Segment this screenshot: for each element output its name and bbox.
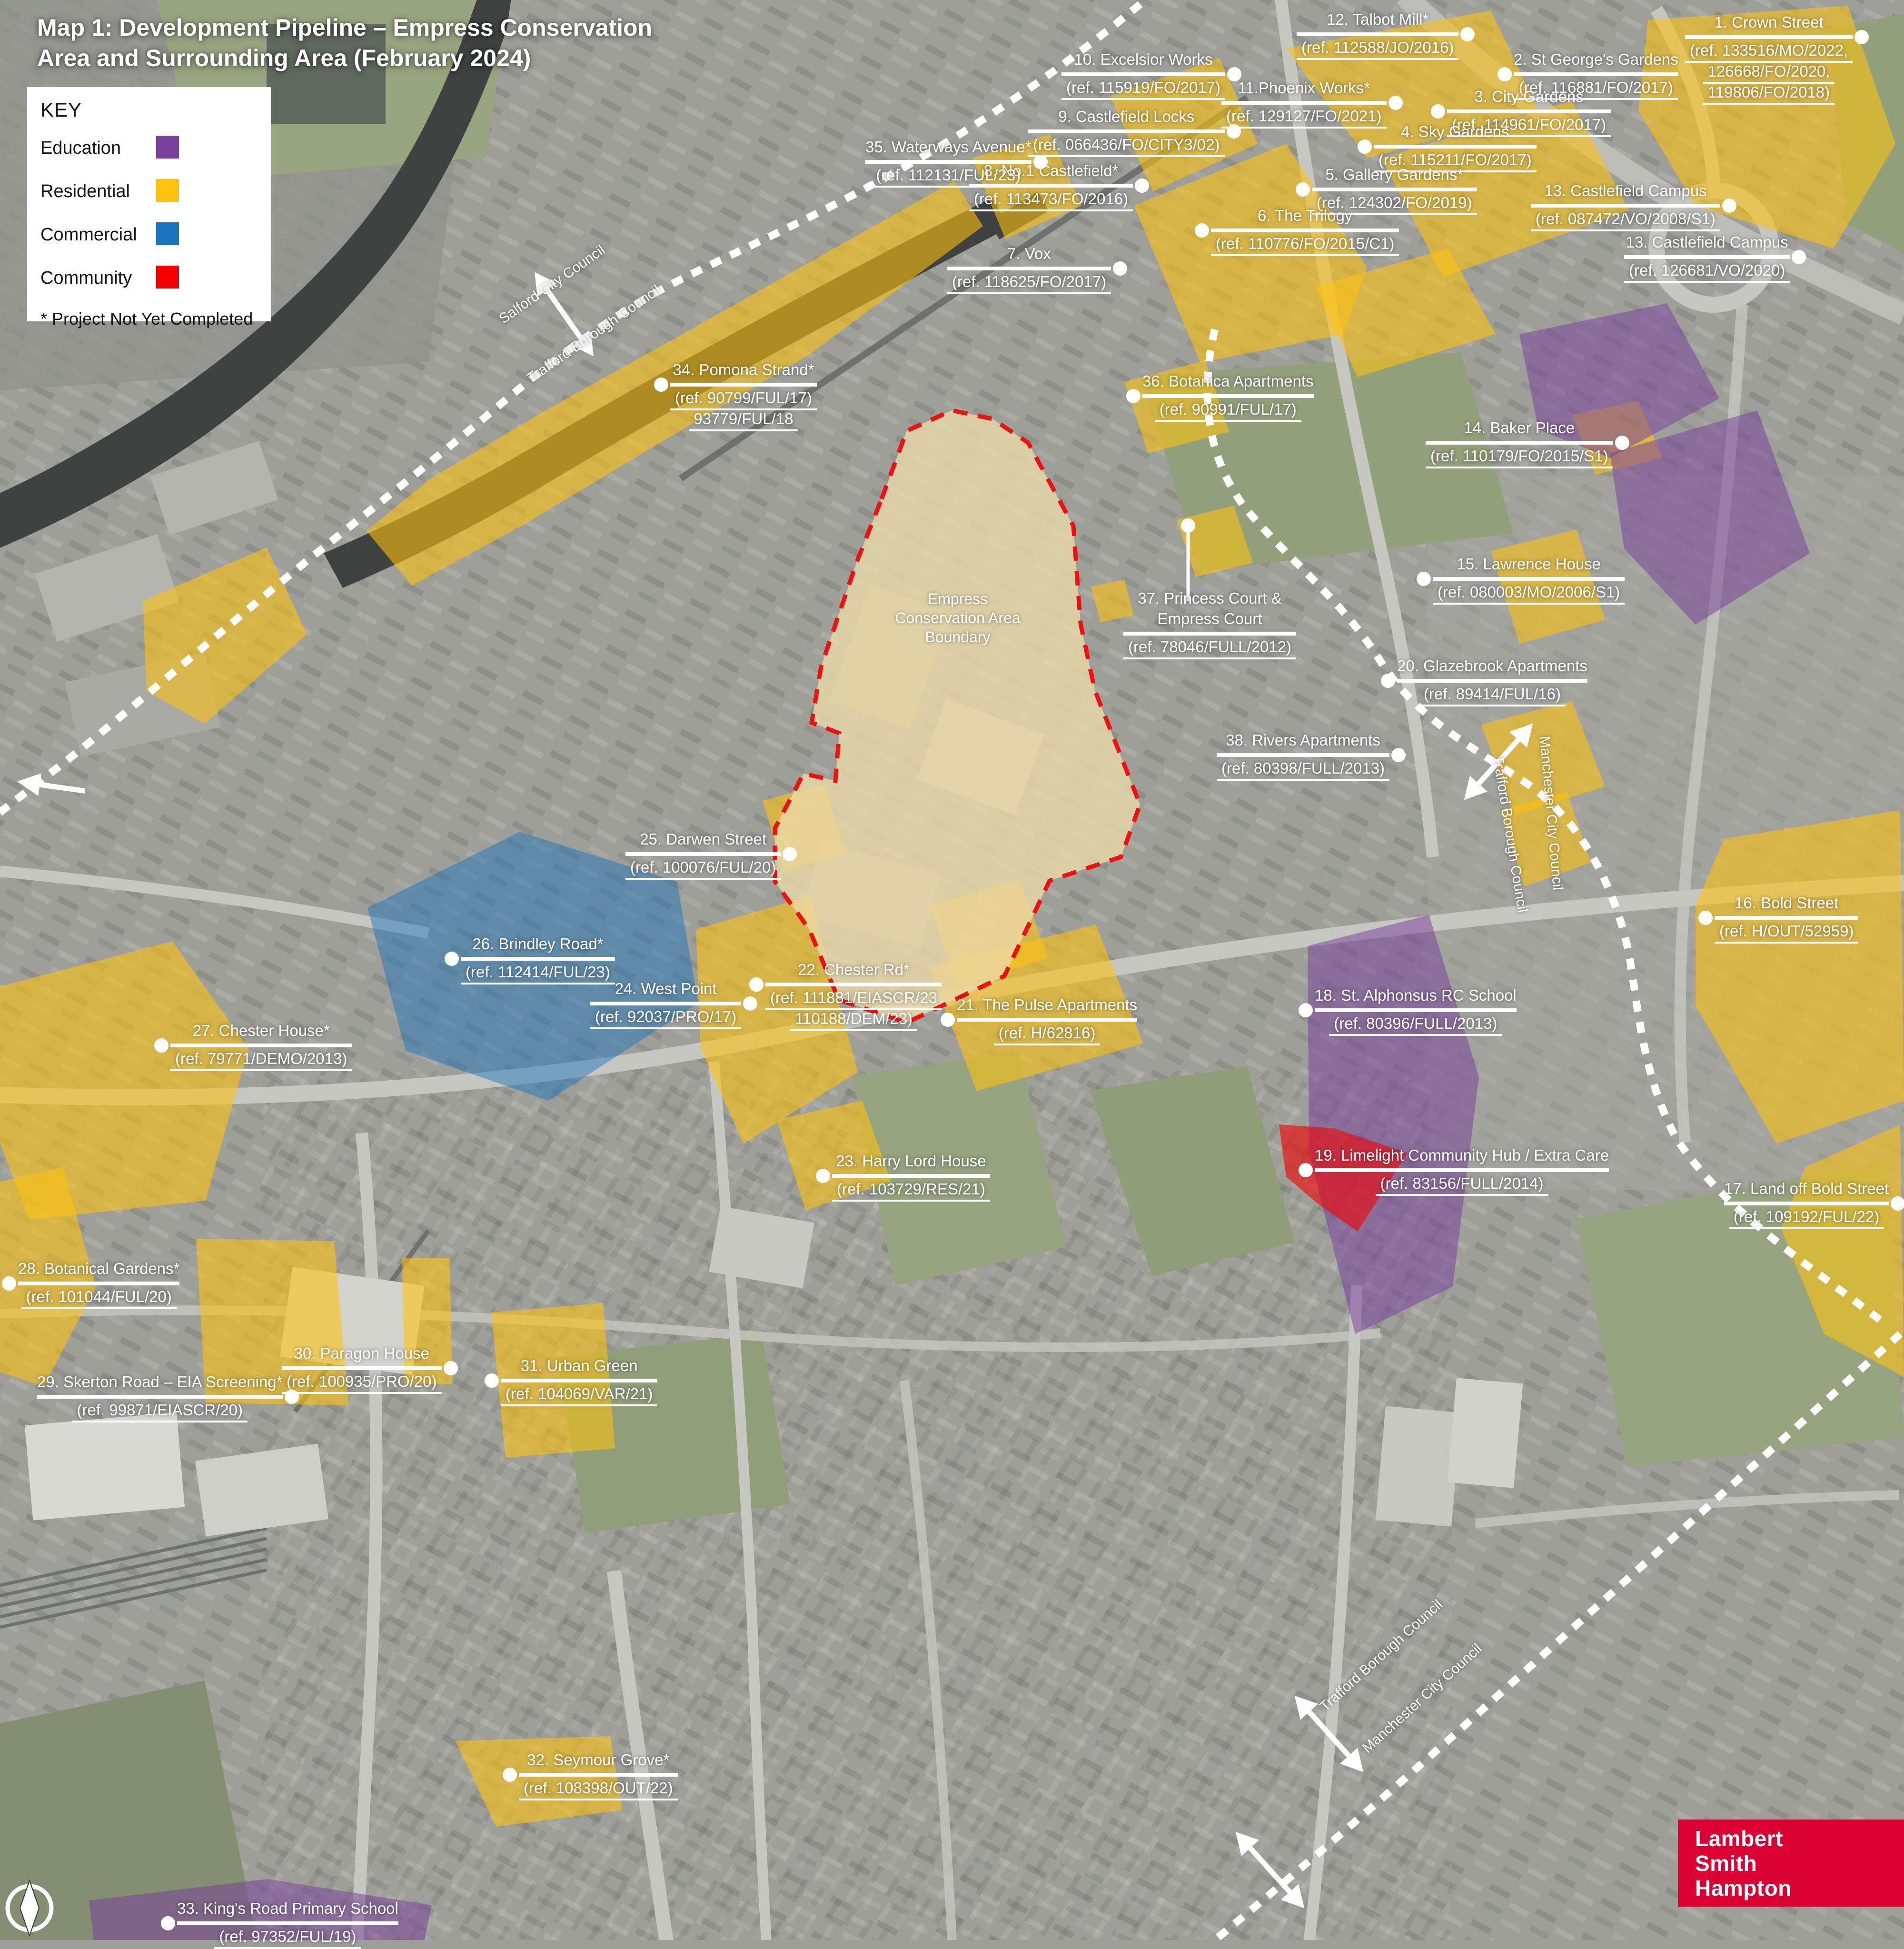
map-label-12: 12. Talbot Mill*(ref. 112588/JO/2016) (1297, 10, 1458, 57)
map-label-9: 9. Castlefield Locks(ref. 066436/FO/CITY… (1028, 108, 1225, 154)
map-label-27: 27. Chester House*(ref. 79771/DEMO/2013) (170, 1022, 352, 1068)
map-label-21: 21. The Pulse Apartments(ref. H/62816) (957, 996, 1137, 1043)
map-label-26: 26. Brindley Road*(ref. 112414/FUL/23) (461, 935, 615, 982)
map-label-13a: 13. Castlefield Campus(ref. 087472/VO/20… (1531, 182, 1720, 229)
legend-label-community: Community (40, 268, 132, 288)
map-label-4: 4. Sky Gardens(ref. 115211/FO/2017) (1374, 123, 1537, 169)
logo-line1: Lambert (1695, 1826, 1904, 1851)
map-label-17: 17. Land off Bold Street(ref. 109192/FUL… (1724, 1180, 1889, 1226)
map-label-36: 36. Botanica Apartments(ref. 90991/FUL/1… (1142, 372, 1314, 419)
map-label-16: 16. Bold Street(ref. H/OUT/52959) (1715, 894, 1858, 941)
map-label-34: 34. Pomona Strand*(ref. 90799/FUL/17)937… (670, 361, 817, 428)
map-label-22: 22. Chester Rd*(ref. 111881/EIASCR/23110… (765, 961, 942, 1028)
map-label-25: 25. Darwen Street(ref. 100076/FUL/20) (625, 830, 781, 877)
legend-swatch-education (156, 136, 179, 159)
map-label-1: 1. Crown Street(ref. 133516/MO/2022,1266… (1685, 13, 1853, 102)
map-label-11: 11.Phoenix Works*(ref. 129127/FO/2021) (1221, 79, 1387, 126)
map-label-7: 7. Vox(ref. 118625/FO/2017) (947, 245, 1111, 291)
map-label-14: 14. Baker Place(ref. 110179/FO/2015/S1) (1426, 419, 1613, 466)
legend-label-residential: Residential (40, 181, 130, 202)
map-label-38: 38. Rivers Apartments(ref. 80398/FULL/20… (1217, 731, 1389, 778)
map-label-23: 23. Harry Lord House(ref. 103729/RES/21) (832, 1152, 990, 1199)
map-title-line2: Area and Surrounding Area (February 2024… (37, 43, 652, 73)
map-label-15: 15. Lawrence House(ref. 080003/MO/2006/S… (1433, 555, 1625, 602)
legend-heading: KEY (40, 99, 258, 121)
conservation-area-label-line2: Conservation Area (895, 608, 1020, 627)
map-title: Map 1: Development Pipeline – Empress Co… (37, 12, 652, 73)
map-label-10: 10. Excelsior Works(ref. 115919/FO/2017) (1061, 50, 1225, 97)
map-canvas: Map 1: Development Pipeline – Empress Co… (0, 0, 1904, 1940)
legend-row-commercial: Commercial (40, 222, 258, 245)
legend-swatch-commercial (156, 222, 179, 245)
logo-line3: Hampton (1695, 1876, 1904, 1900)
map-label-20: 20. Glazebrook Apartments(ref. 89414/FUL… (1397, 657, 1587, 704)
legend-label-commercial: Commercial (40, 225, 137, 245)
legend-note: * Project Not Yet Completed (40, 309, 258, 329)
conservation-area-label: Empress Conservation Area Boundary (895, 589, 1020, 646)
map-label-28: 28. Botanical Gardens*(ref. 101044/FUL/2… (18, 1260, 179, 1306)
map-label-29: 29. Skerton Road – EIA Screening*(ref. 9… (37, 1373, 283, 1420)
map-label-18: 18. St. Alphonsus RC School(ref. 80396/F… (1315, 986, 1517, 1033)
label-37-dot (1181, 518, 1195, 533)
lambert-smith-hampton-logo: Lambert Smith Hampton (1678, 1820, 1904, 1907)
map-label-33: 33. King's Road Primary School(ref. 9735… (177, 1899, 398, 1946)
conservation-area-label-line3: Boundary (895, 627, 1020, 646)
map-label-24: 24. West Point(ref. 92037/PRO/17) (590, 980, 741, 1026)
legend-row-residential: Residential (40, 179, 258, 202)
legend: KEY Education Residential Commercial Com… (27, 87, 271, 321)
logo-line2: Smith (1695, 1851, 1904, 1876)
map-label-6: 6. The Trilogy(ref. 110776/FO/2015/C1) (1211, 207, 1399, 253)
legend-label-education: Education (40, 138, 121, 159)
map-label-32: 32. Seymour Grove*(ref. 108398/OUT/22) (519, 1751, 678, 1798)
map-title-line1: Map 1: Development Pipeline – Empress Co… (37, 12, 652, 43)
map-label-37: 37. Princess Court &Empress Court(ref. 7… (1123, 589, 1296, 656)
legend-swatch-community (156, 266, 179, 288)
conservation-area-label-line1: Empress (895, 589, 1020, 608)
map-label-13b: 13. Castlefield Campus(ref. 126681/VO/20… (1624, 233, 1790, 280)
legend-row-education: Education (40, 136, 258, 159)
map-label-5: 5. Gallery Gardens*(ref. 124302/FO/2019) (1312, 166, 1477, 212)
legend-swatch-residential (156, 179, 179, 202)
legend-row-community: Community (40, 266, 258, 288)
map-label-35: 35. Waterways Avenue*(ref. 112131/FUL/23… (865, 138, 1031, 185)
map-label-31: 31. Urban Green(ref. 104069/VAR/21) (501, 1357, 657, 1403)
map-label-19: 19. Limelight Community Hub / Extra Care… (1315, 1146, 1609, 1193)
map-label-30: 30. Paragon House(ref. 100935/PRO/20) (282, 1344, 442, 1391)
